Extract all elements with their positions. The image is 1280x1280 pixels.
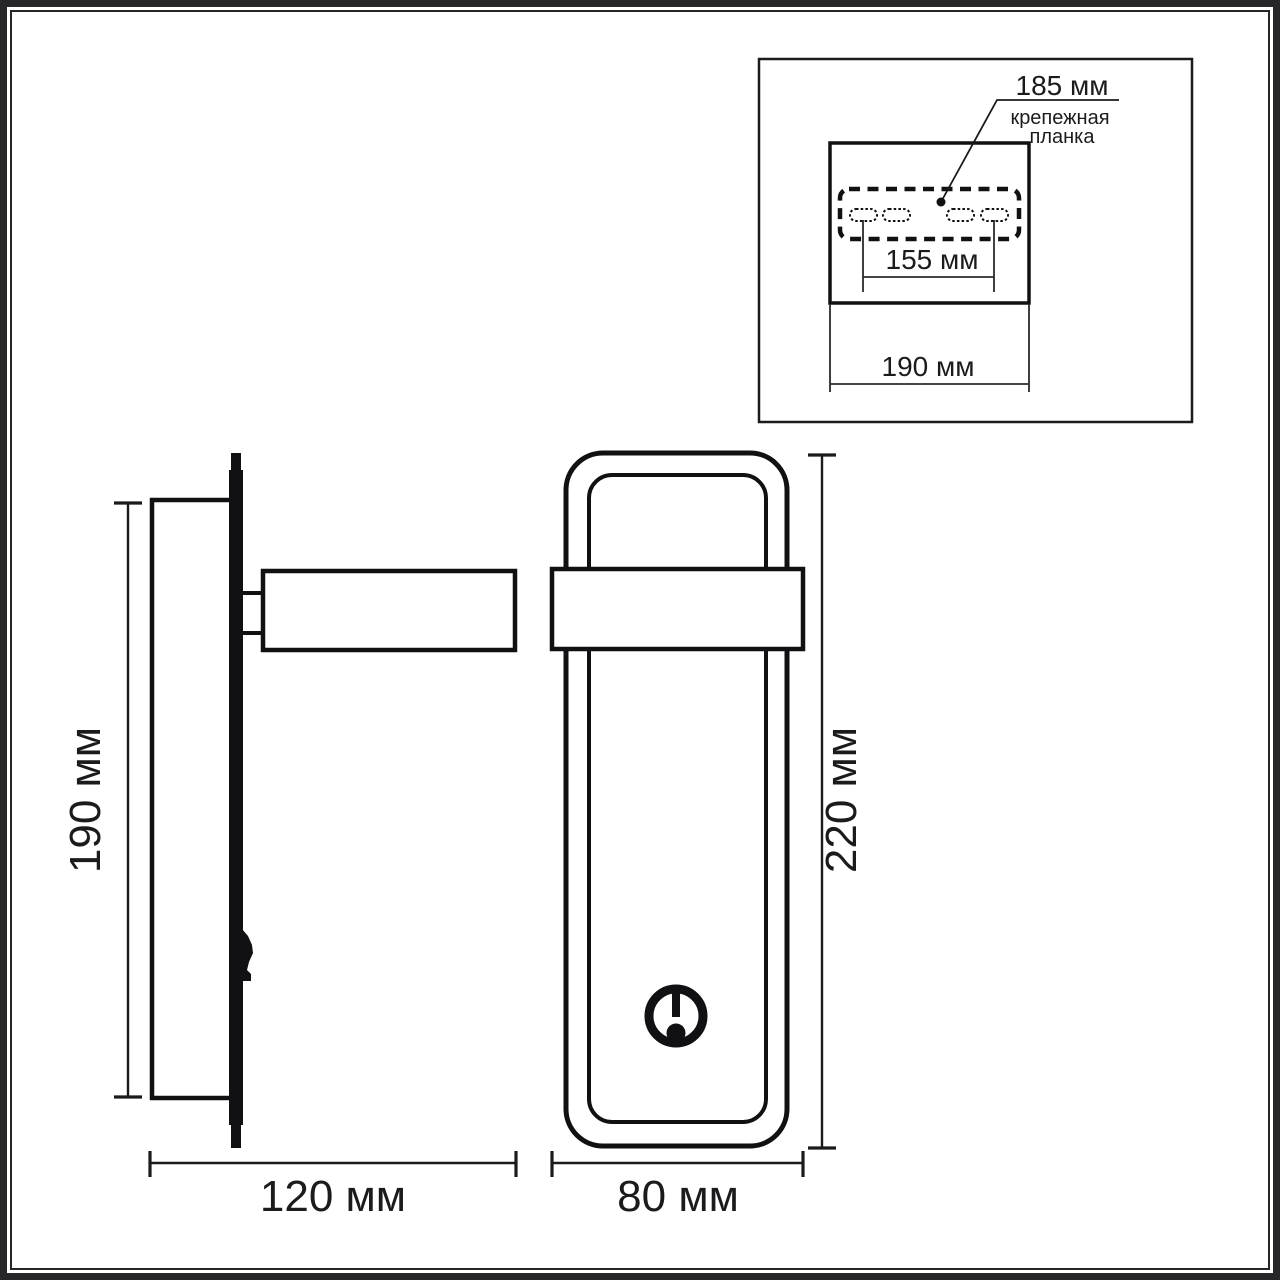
- label-inset-overall-width: 190 мм: [882, 351, 975, 382]
- label-front-width: 80 мм: [617, 1172, 739, 1221]
- leader-dot: [937, 198, 946, 207]
- label-front-height: 220 мм: [817, 727, 866, 873]
- front-spot-band: [552, 569, 803, 649]
- label-slot-spacing: 155 мм: [886, 244, 979, 275]
- drawing-canvas: 185 мм крепежная планка 155 мм 190 мм: [0, 0, 1280, 1280]
- side-view: 190 мм 120 мм: [61, 453, 516, 1221]
- label-plate-width: 185 мм: [1016, 70, 1109, 101]
- side-back-plate: [152, 500, 232, 1098]
- side-spot-cylinder: [263, 571, 515, 650]
- label-side-depth: 120 мм: [260, 1172, 406, 1221]
- label-side-height: 190 мм: [61, 727, 110, 873]
- dim-side-height: [114, 503, 142, 1097]
- power-icon-bar: [672, 986, 680, 1017]
- front-view: 220 мм 80 мм: [552, 453, 866, 1221]
- label-plate-caption-2: планка: [1030, 126, 1096, 148]
- back-plate-outline: [830, 143, 1029, 303]
- power-icon-dot: [667, 1024, 686, 1043]
- side-switch-knob: [242, 929, 253, 981]
- mounting-inset: 185 мм крепежная планка 155 мм 190 мм: [759, 59, 1192, 422]
- lamp-dimension-diagram: 185 мм крепежная планка 155 мм 190 мм: [0, 0, 1280, 1280]
- side-frame-edge: [229, 453, 243, 1148]
